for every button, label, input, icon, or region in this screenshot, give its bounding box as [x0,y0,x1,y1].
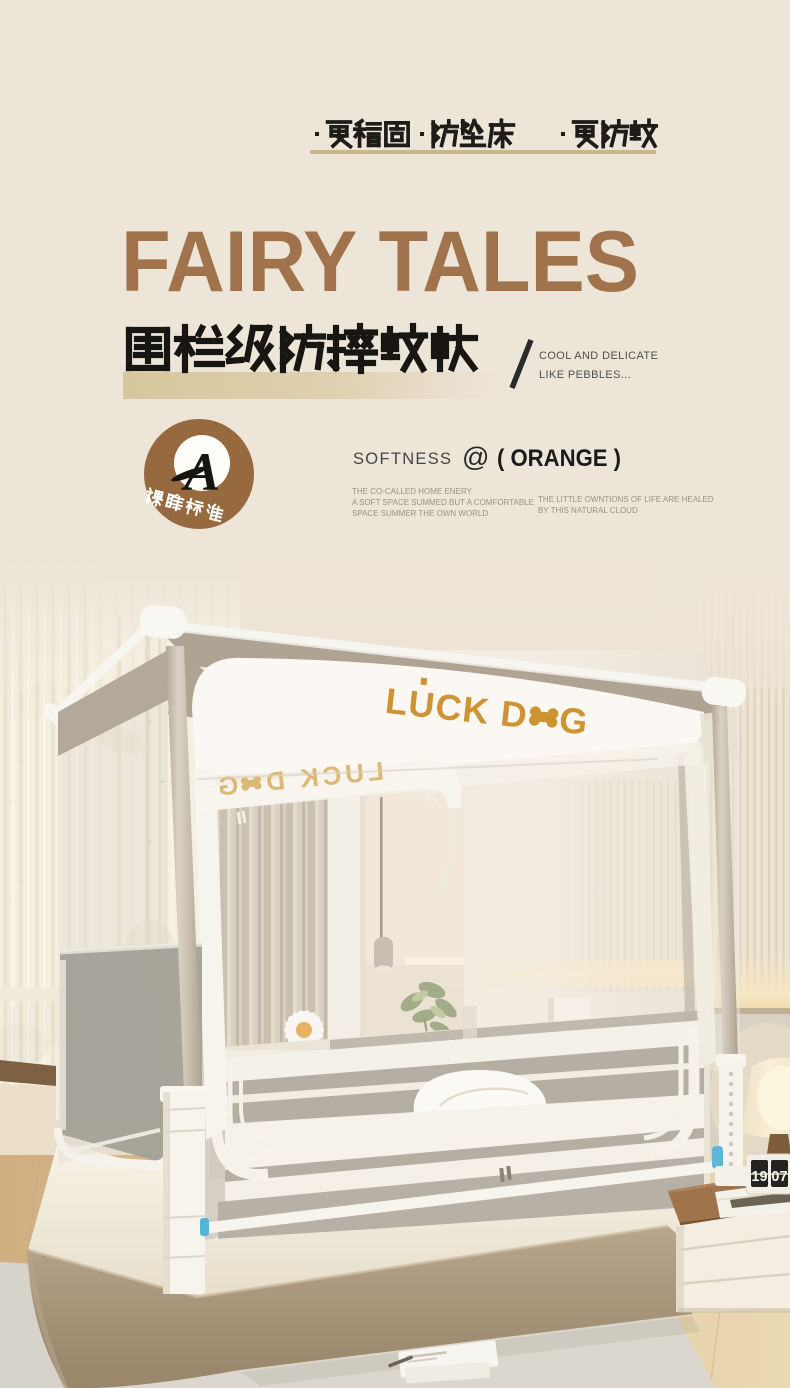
svg-text:LIKE PEBBLES...: LIKE PEBBLES... [539,369,631,381]
svg-text:THE CO-CALLED HOME ENERY: THE CO-CALLED HOME ENERY [352,487,473,496]
svg-text:BY THIS NATURAL CLOUD: BY THIS NATURAL CLOUD [538,506,638,515]
svg-text:G: G [557,699,589,743]
svg-text:FAIRY TALES: FAIRY TALES [121,214,639,310]
svg-text:07: 07 [771,1169,787,1185]
svg-text:COOL AND DELICATE: COOL AND DELICATE [539,350,658,362]
svg-text:THE LITTLE OWNTIONS OF LIFE AR: THE LITTLE OWNTIONS OF LIFE ARE HEALED [538,495,714,504]
svg-text:G: G [217,770,240,802]
svg-text:A SOFT SPACE SUMMED BUT A COMF: A SOFT SPACE SUMMED BUT A COMFORTABLE [352,498,534,507]
svg-text:SOFTNESS: SOFTNESS [353,450,452,468]
svg-text:SPACE SUMMER THE OWN WORLD: SPACE SUMMER THE OWN WORLD [352,509,488,518]
svg-text:19: 19 [751,1169,767,1185]
svg-text:@: @ [462,442,489,472]
svg-text:( ORANGE ): ( ORANGE ) [497,445,621,472]
